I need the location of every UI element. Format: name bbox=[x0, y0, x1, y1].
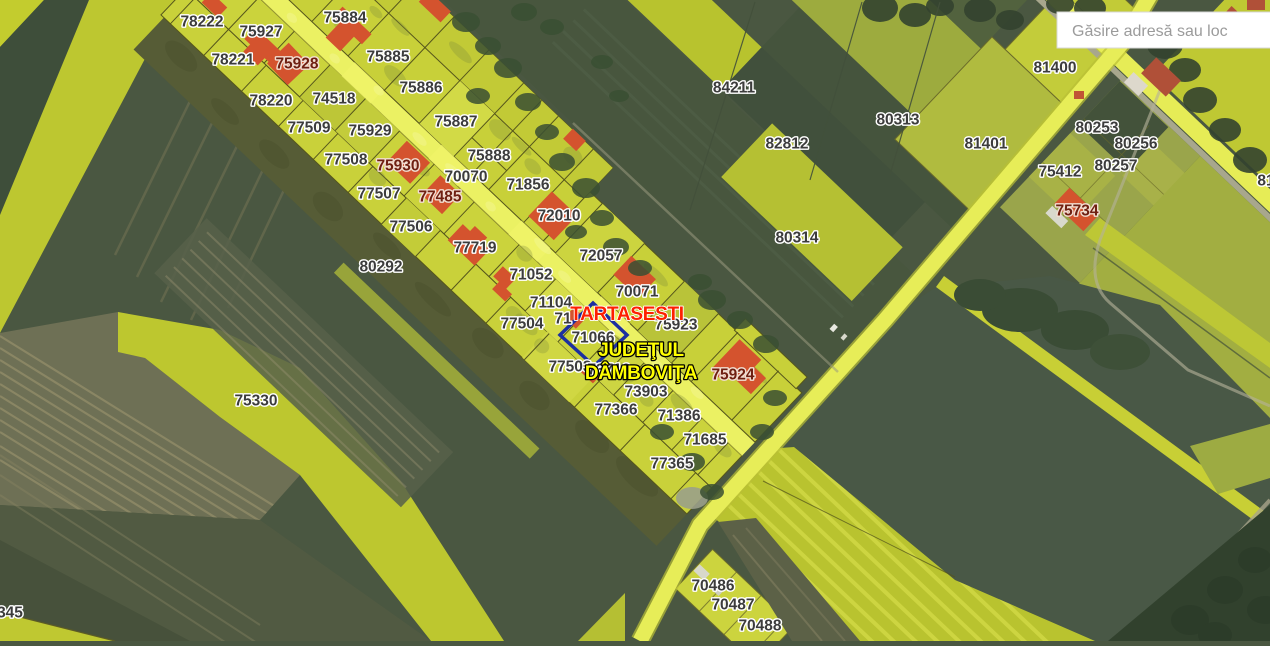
svg-text:74518: 74518 bbox=[312, 91, 355, 108]
svg-text:82812: 82812 bbox=[765, 136, 808, 153]
svg-text:70071: 70071 bbox=[615, 284, 658, 301]
svg-text:81400: 81400 bbox=[1033, 60, 1076, 77]
svg-text:75927: 75927 bbox=[239, 24, 282, 41]
svg-text:71052: 71052 bbox=[509, 267, 552, 284]
svg-text:75888: 75888 bbox=[467, 148, 510, 165]
svg-text:70488: 70488 bbox=[738, 618, 781, 635]
svg-text:77508: 77508 bbox=[324, 152, 367, 169]
svg-text:77366: 77366 bbox=[594, 402, 637, 419]
svg-text:75412: 75412 bbox=[1038, 164, 1081, 181]
svg-text:75928: 75928 bbox=[275, 56, 318, 73]
svg-text:70487: 70487 bbox=[711, 597, 754, 614]
svg-text:80256: 80256 bbox=[1114, 136, 1157, 153]
svg-text:77509: 77509 bbox=[287, 120, 330, 137]
svg-text:80313: 80313 bbox=[876, 112, 919, 129]
svg-text:78220: 78220 bbox=[249, 93, 292, 110]
svg-text:Găsire adresă sau loc: Găsire adresă sau loc bbox=[1072, 23, 1228, 40]
svg-text:DÂMBOVIŢA: DÂMBOVIŢA bbox=[585, 362, 698, 384]
svg-text:72057: 72057 bbox=[579, 248, 622, 265]
svg-text:72010: 72010 bbox=[537, 208, 580, 225]
svg-text:81401: 81401 bbox=[964, 136, 1007, 153]
svg-text:75884: 75884 bbox=[323, 10, 366, 27]
svg-text:71104: 71104 bbox=[530, 295, 573, 312]
svg-text:77485: 77485 bbox=[418, 189, 461, 206]
svg-text:80292: 80292 bbox=[359, 259, 402, 276]
svg-text:75886: 75886 bbox=[399, 80, 442, 97]
svg-text:81: 81 bbox=[1257, 173, 1270, 190]
svg-text:71386: 71386 bbox=[657, 408, 700, 425]
svg-text:77365: 77365 bbox=[650, 456, 693, 473]
svg-text:JUDEŢUL: JUDEŢUL bbox=[598, 340, 684, 361]
svg-text:75885: 75885 bbox=[366, 49, 409, 66]
svg-text:345: 345 bbox=[0, 605, 23, 622]
svg-text:75887: 75887 bbox=[434, 114, 477, 131]
svg-text:70486: 70486 bbox=[691, 578, 734, 595]
svg-text:71856: 71856 bbox=[506, 177, 549, 194]
svg-text:77507: 77507 bbox=[357, 186, 400, 203]
svg-text:80314: 80314 bbox=[775, 230, 818, 247]
svg-text:75924: 75924 bbox=[711, 367, 754, 384]
svg-text:70070: 70070 bbox=[444, 169, 487, 186]
svg-text:80257: 80257 bbox=[1094, 158, 1137, 175]
svg-text:75734: 75734 bbox=[1055, 203, 1098, 220]
svg-text:75930: 75930 bbox=[376, 158, 419, 175]
svg-text:77719: 77719 bbox=[453, 240, 496, 257]
svg-text:75330: 75330 bbox=[234, 393, 277, 410]
svg-text:75929: 75929 bbox=[348, 123, 391, 140]
svg-text:78221: 78221 bbox=[211, 52, 254, 69]
svg-text:78222: 78222 bbox=[180, 14, 223, 31]
svg-text:71685: 71685 bbox=[683, 432, 726, 449]
svg-text:77506: 77506 bbox=[389, 219, 432, 236]
svg-text:80253: 80253 bbox=[1075, 120, 1118, 137]
svg-text:73903: 73903 bbox=[624, 384, 667, 401]
svg-text:TARTASESTI: TARTASESTI bbox=[570, 304, 683, 325]
svg-text:84211: 84211 bbox=[713, 80, 756, 97]
svg-text:77504: 77504 bbox=[500, 316, 543, 333]
